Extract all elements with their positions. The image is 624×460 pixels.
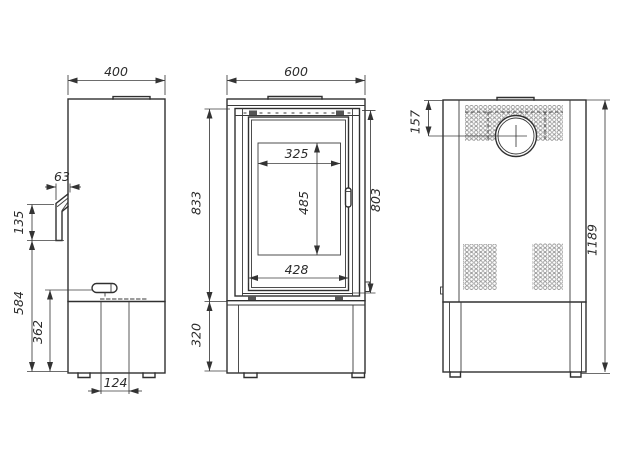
front-view: 600 833 320 803 325 485 bbox=[189, 64, 384, 378]
dim-label-lower-body: 584 bbox=[11, 291, 26, 315]
door-handle bbox=[346, 188, 352, 207]
stove-dimension-drawing: 400 63 135 584 362 bbox=[0, 0, 624, 460]
side-door-protrusion bbox=[56, 194, 68, 241]
dim-base-height-320: 320 bbox=[189, 302, 228, 372]
dim-door-offset-63: 63 bbox=[45, 169, 81, 200]
dim-label-flue-offset: 157 bbox=[408, 110, 423, 134]
dim-label-front-width: 600 bbox=[284, 64, 308, 79]
dim-front-width-600: 600 bbox=[227, 64, 365, 95]
dim-label-door-offset: 63 bbox=[54, 169, 70, 184]
dim-label-side-depth: 400 bbox=[104, 64, 128, 79]
side-view-body-outline bbox=[68, 97, 165, 378]
dim-label-handle-height: 362 bbox=[30, 320, 45, 344]
dim-door-height-803: 803 bbox=[353, 111, 383, 294]
air-control-handle bbox=[92, 284, 117, 299]
dim-upper-body-833: 833 bbox=[189, 109, 231, 302]
dim-drawer-width-124: 124 bbox=[88, 302, 142, 395]
dim-label-drawer-width: 124 bbox=[104, 375, 128, 390]
rear-vent-perforation-bottom-left bbox=[463, 244, 497, 290]
rear-view: 157 1189 bbox=[408, 98, 611, 378]
dim-label-glass-height: 485 bbox=[296, 191, 311, 215]
dim-label-base-height: 320 bbox=[189, 323, 204, 347]
dim-label-door-opening: 428 bbox=[285, 262, 309, 277]
dim-glass-width-325: 325 bbox=[258, 146, 341, 164]
dim-label-total-height: 1189 bbox=[585, 224, 600, 256]
dim-handle-height-362: 362 bbox=[30, 290, 92, 372]
dim-side-depth-400: 400 bbox=[68, 64, 165, 95]
side-view: 400 63 135 584 362 bbox=[11, 64, 165, 394]
dim-door-opening-428: 428 bbox=[249, 262, 349, 283]
dim-lower-body-584: 584 bbox=[11, 241, 68, 372]
dim-label-door-height: 803 bbox=[368, 188, 383, 212]
dim-label-glass-width: 325 bbox=[285, 146, 309, 161]
dim-label-upper-body: 833 bbox=[189, 191, 204, 215]
technical-drawing-canvas: 400 63 135 584 362 bbox=[0, 0, 624, 460]
dim-label-door-front-height: 135 bbox=[11, 211, 26, 235]
rear-vent-perforation-bottom-right bbox=[533, 244, 564, 291]
